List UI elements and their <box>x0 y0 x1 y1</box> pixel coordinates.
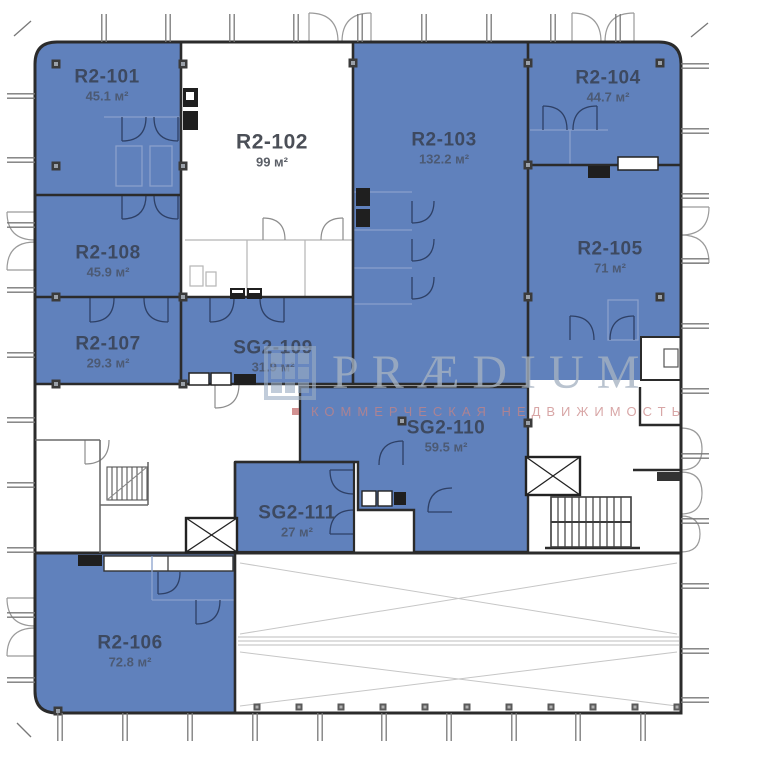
floor-plan-page: R2-101 45.1 м² R2-102 99 м² R2-103 132.2… <box>0 0 767 768</box>
floor-plan-drawing <box>0 0 767 768</box>
